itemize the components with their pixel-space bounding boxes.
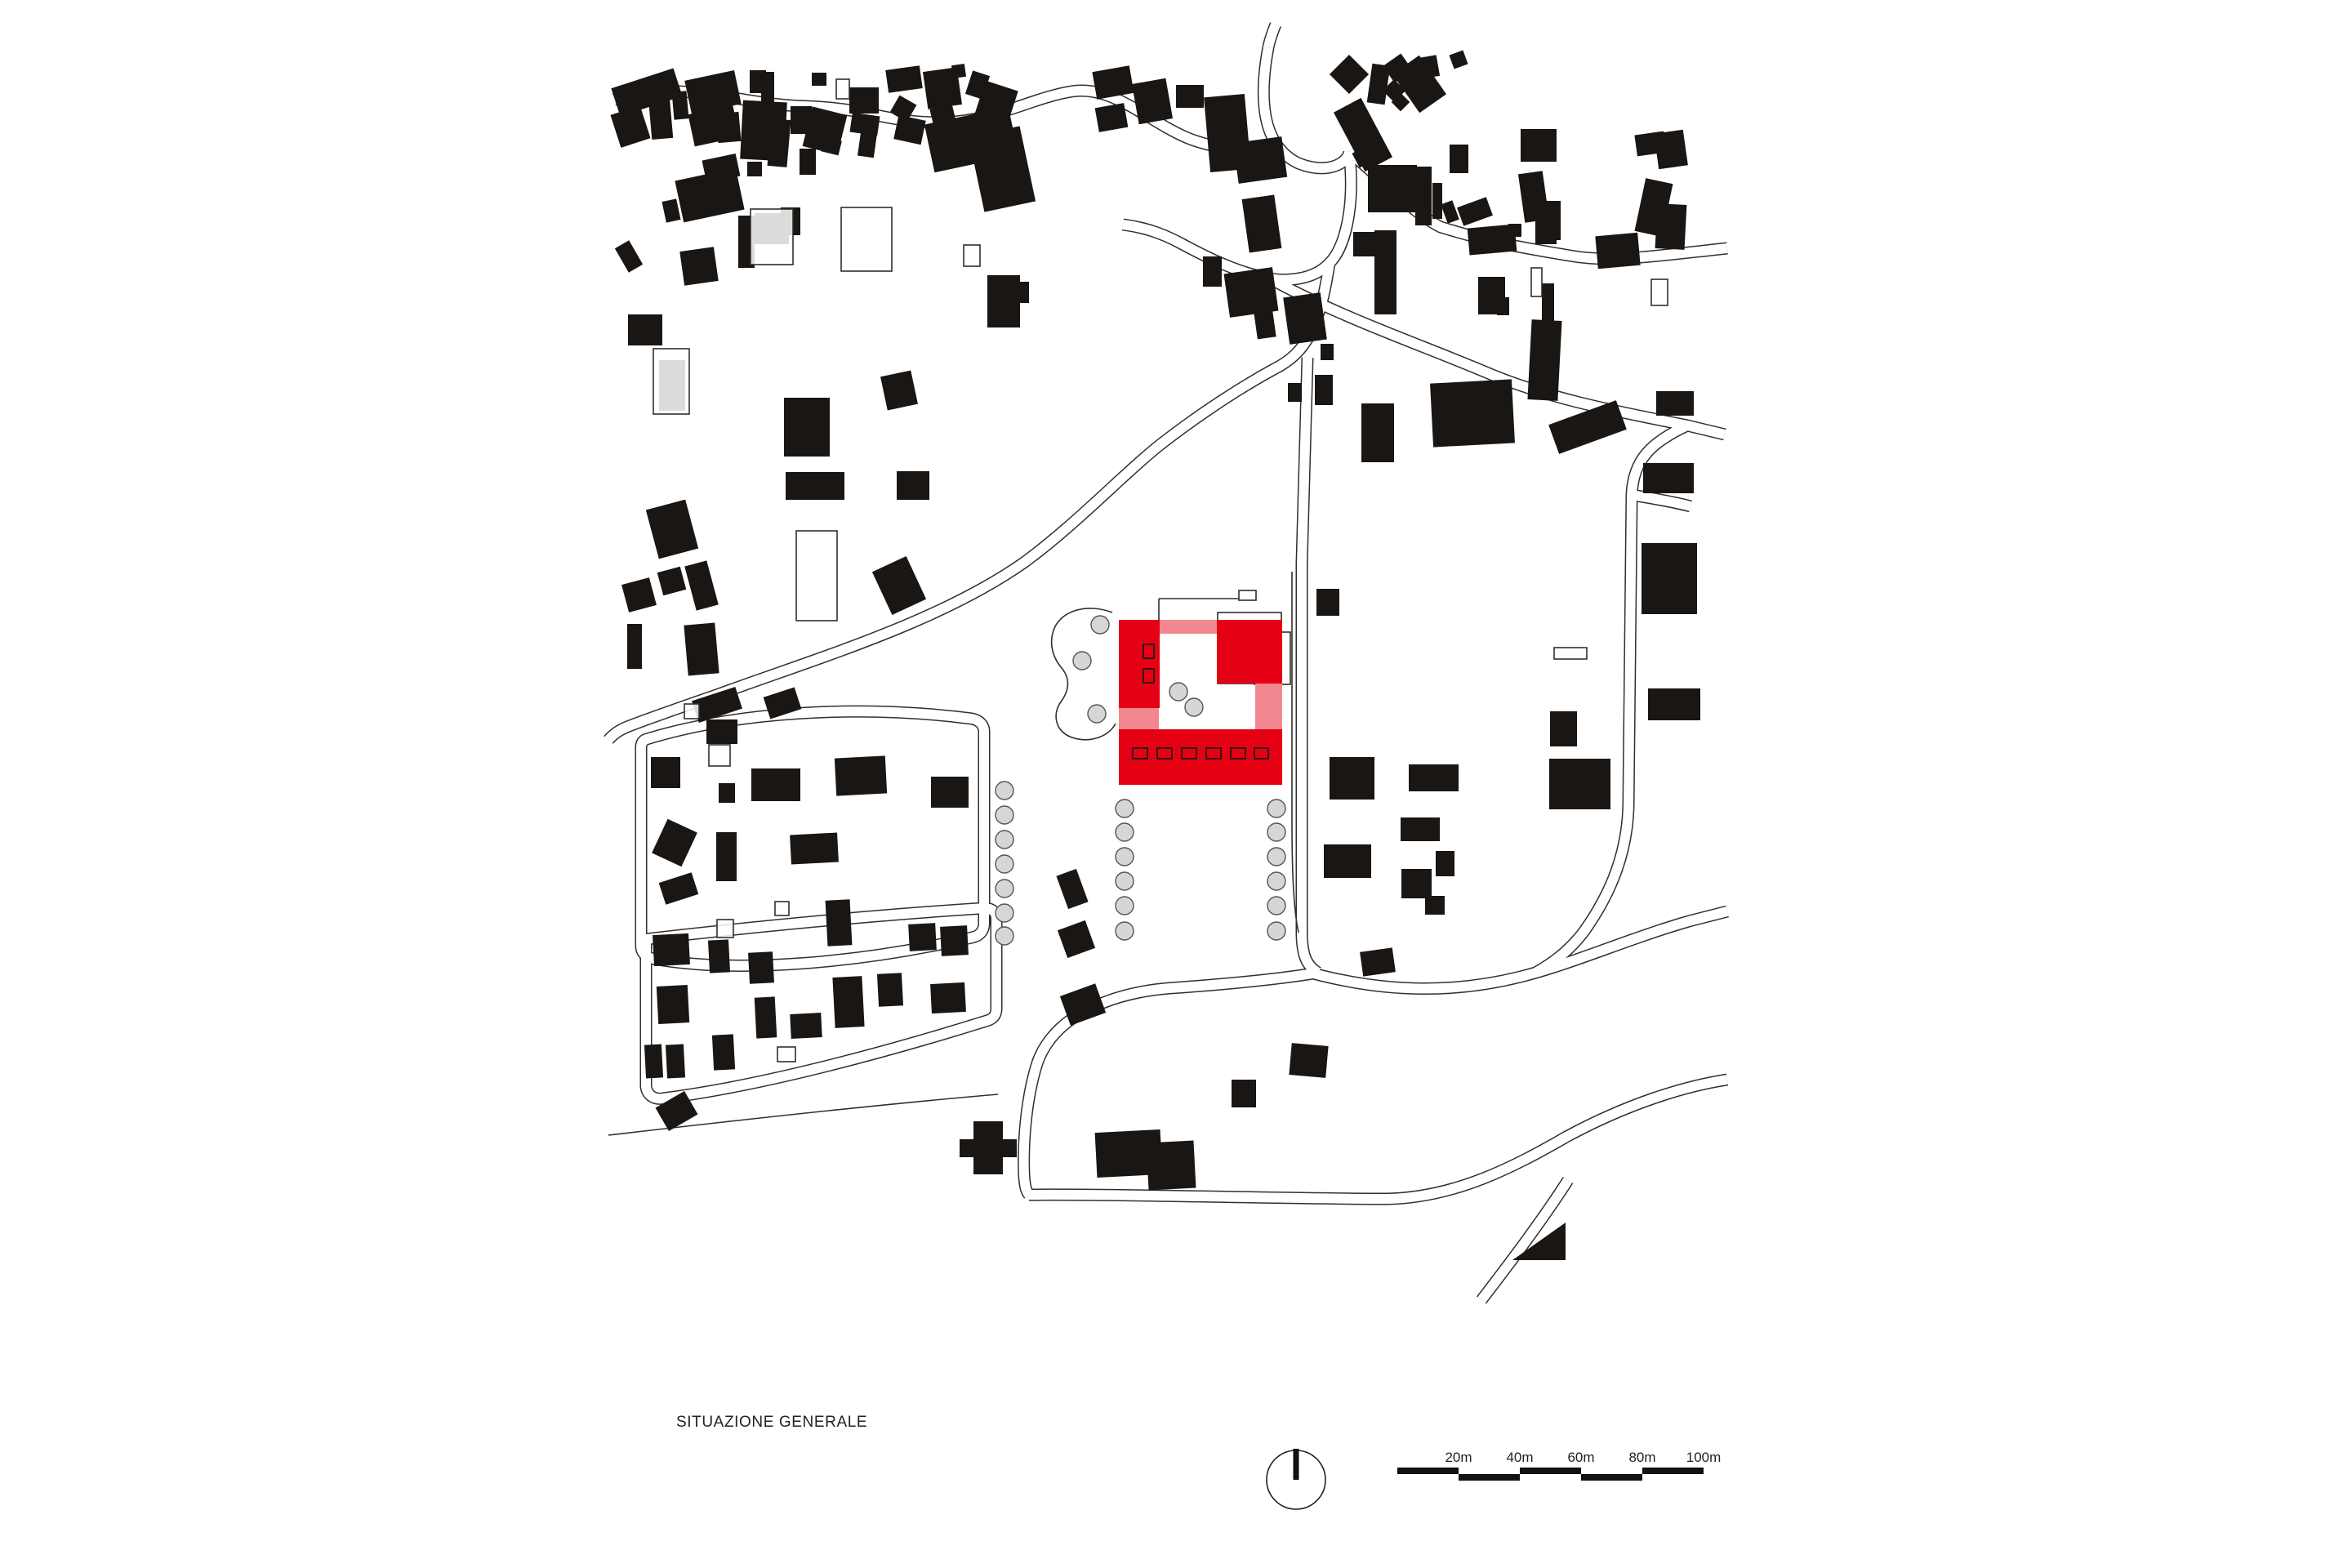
building-footprint <box>719 783 735 803</box>
site-plan-sheet: SITUAZIONE GENERALE 20m 40m 60m 80m 100m <box>0 0 2352 1568</box>
building-footprint <box>755 996 777 1038</box>
building-footprint <box>716 832 737 881</box>
building-outline <box>1651 279 1668 305</box>
building-footprint <box>1441 200 1459 224</box>
building-footprint <box>1176 85 1204 108</box>
building-footprint <box>657 567 687 596</box>
building-footprint <box>1409 764 1459 791</box>
building-footprint <box>1368 165 1417 212</box>
building-footprint <box>611 69 682 117</box>
building-footprint <box>897 471 929 500</box>
tree-circle <box>1088 705 1106 723</box>
scale-label-100m: 100m <box>1686 1450 1722 1465</box>
tree-circle <box>1116 848 1134 866</box>
scale-bar-labels: 20m 40m 60m 80m 100m <box>1445 1450 1721 1465</box>
tree-circle <box>996 927 1013 945</box>
building-footprint <box>931 777 969 808</box>
project-building-tint <box>1255 684 1282 730</box>
building-outline <box>717 920 733 938</box>
building-footprint <box>1535 220 1557 244</box>
road-surface <box>1632 495 1690 506</box>
building-footprint <box>1655 203 1687 250</box>
building-footprint <box>1436 851 1454 876</box>
building-footprint <box>951 64 966 78</box>
building-footprint <box>1242 195 1282 253</box>
building-footprint <box>1401 817 1440 841</box>
building-footprint <box>1457 197 1493 226</box>
tree-circle <box>996 880 1013 898</box>
building-footprint <box>1360 947 1396 976</box>
building-footprint <box>684 560 719 610</box>
building-footprint <box>790 1013 822 1039</box>
building-footprint <box>768 118 791 167</box>
tree-circle <box>1267 848 1285 866</box>
building-footprint <box>1401 869 1432 898</box>
building-footprint <box>1095 103 1129 132</box>
building-outline <box>653 349 689 414</box>
project-building <box>1217 620 1282 684</box>
tree-circle <box>1267 800 1285 817</box>
building-footprint <box>1361 403 1394 462</box>
scale-label-60m: 60m <box>1567 1450 1594 1465</box>
tree-circle <box>1267 897 1285 915</box>
scale-label-20m: 20m <box>1445 1450 1472 1465</box>
building-footprint <box>1641 543 1697 614</box>
building-footprint <box>644 1044 663 1078</box>
tree-circle <box>1116 922 1134 940</box>
tree-circle <box>1116 823 1134 841</box>
tree-circle <box>1116 897 1134 915</box>
tree-circle <box>1185 698 1203 716</box>
scale-label-80m: 80m <box>1628 1450 1655 1465</box>
building-footprint <box>930 982 966 1013</box>
tree-circle <box>1267 922 1285 940</box>
building-footprint <box>751 768 800 801</box>
tree-circle <box>1169 683 1187 701</box>
building-footprint <box>661 198 680 222</box>
building-footprint <box>790 833 839 865</box>
scale-bar-segment <box>1459 1474 1520 1481</box>
project-building <box>1119 729 1282 785</box>
building-footprint <box>784 398 830 457</box>
building-outline <box>796 531 837 621</box>
building-footprint <box>1092 65 1134 99</box>
building-outline <box>709 745 730 766</box>
building-footprint <box>800 149 816 175</box>
building-footprint <box>1056 869 1088 909</box>
building-footprint <box>877 973 903 1007</box>
tree-circle <box>1267 872 1285 890</box>
building-footprint <box>832 976 864 1028</box>
building-footprint <box>651 757 680 788</box>
building-footprint <box>1550 711 1577 746</box>
scale-bar-segment <box>1520 1468 1581 1474</box>
building-footprint <box>1288 383 1302 402</box>
tree-circle <box>1091 616 1109 634</box>
building-footprint <box>684 622 719 675</box>
north-arrow-needle <box>1294 1449 1299 1480</box>
drawing-title: SITUAZIONE GENERALE <box>676 1414 867 1431</box>
building-footprint <box>987 275 1020 327</box>
tree-circle <box>996 855 1013 873</box>
building-footprint <box>748 951 774 984</box>
building-footprint <box>1450 145 1468 173</box>
building-footprint <box>1147 1141 1196 1191</box>
building-footprint <box>969 126 1036 212</box>
tree-circle <box>996 806 1013 824</box>
building-footprint <box>1654 130 1688 170</box>
building-footprint <box>1415 167 1432 225</box>
building-footprint <box>1374 230 1396 314</box>
building-footprint <box>1432 183 1442 219</box>
building-footprint <box>826 899 853 946</box>
building-footprint <box>880 371 918 411</box>
building-footprint <box>646 500 698 559</box>
building-footprint <box>1549 759 1610 809</box>
project-building-tint <box>1119 708 1159 730</box>
scale-bar <box>1397 1468 1704 1481</box>
scale-bar-segment <box>1581 1474 1642 1481</box>
building-footprint <box>1289 1043 1328 1078</box>
building-footprint <box>657 985 689 1024</box>
building-footprint <box>1643 463 1694 493</box>
building-outline <box>684 704 699 719</box>
building-footprint <box>960 1139 1017 1157</box>
building-outline <box>751 209 793 265</box>
building-footprint <box>1595 233 1640 269</box>
scale-bar-segment <box>1397 1468 1459 1474</box>
building-footprint <box>885 65 922 93</box>
building-footprint <box>1449 50 1468 69</box>
building-footprint <box>715 112 741 143</box>
tree-circle <box>1116 872 1134 890</box>
building-footprint <box>1232 1080 1256 1107</box>
tree-circle <box>996 904 1013 922</box>
building-footprint <box>857 131 877 158</box>
building-outline <box>1554 648 1587 659</box>
building-footprint <box>1132 78 1173 125</box>
scale-label-40m: 40m <box>1506 1450 1533 1465</box>
building-footprint <box>712 1034 735 1070</box>
building-footprint <box>1527 319 1561 401</box>
project-building <box>1119 620 1160 708</box>
building-outline <box>1239 590 1256 600</box>
building-footprint <box>1418 55 1440 79</box>
tree-circle <box>996 831 1013 849</box>
tree-circle <box>1073 652 1091 670</box>
building-footprint <box>849 87 879 114</box>
building-footprint <box>648 96 673 140</box>
building-footprint <box>1283 292 1327 345</box>
site-plan-drawing: SITUAZIONE GENERALE 20m 40m 60m 80m 100m <box>0 0 2352 1568</box>
building-footprint <box>627 624 642 669</box>
building-footprint <box>1656 391 1694 416</box>
building-outline <box>777 1047 795 1062</box>
building-footprint <box>1233 136 1287 184</box>
building-footprint <box>628 314 662 345</box>
building-footprint <box>1508 224 1521 237</box>
building-footprint <box>666 1044 685 1078</box>
building-footprint <box>1425 896 1445 915</box>
project-building-tint <box>1160 620 1217 634</box>
building-footprint <box>786 472 844 500</box>
building-footprint <box>652 819 697 867</box>
building-footprint <box>1018 282 1029 303</box>
building-outline <box>836 79 849 99</box>
building-footprint <box>1521 129 1557 162</box>
building-footprint <box>747 162 762 176</box>
building-footprint <box>1316 589 1339 616</box>
tree-circle <box>1267 823 1285 841</box>
building-footprint <box>872 556 926 615</box>
building-footprint <box>1058 920 1095 958</box>
scale-bar-segment <box>1642 1468 1704 1474</box>
building-outline <box>841 207 892 271</box>
building-footprint <box>1648 688 1700 720</box>
building-footprint <box>615 240 643 272</box>
building-footprint <box>610 105 650 148</box>
building-footprint <box>679 247 718 285</box>
building-footprint <box>672 91 689 119</box>
tree-circle <box>1116 800 1134 817</box>
building-footprint <box>1330 55 1369 94</box>
building-footprint <box>1430 379 1515 447</box>
building-footprint <box>1324 844 1371 878</box>
building-footprint <box>653 933 690 966</box>
building-footprint <box>621 577 657 612</box>
building-outline <box>964 245 980 266</box>
building-footprint <box>835 755 887 795</box>
building-footprint <box>1315 375 1333 405</box>
building-footprint <box>1330 757 1374 800</box>
building-footprint <box>908 923 937 951</box>
building-footprint <box>1321 344 1334 360</box>
building-footprint <box>708 939 730 973</box>
building-footprint <box>940 925 969 956</box>
north-arrow <box>1267 1449 1325 1509</box>
building-footprint <box>812 73 826 86</box>
tree-circle <box>996 782 1013 800</box>
building-footprint <box>1203 256 1222 287</box>
building-footprint <box>659 872 699 905</box>
building-outline <box>1531 268 1542 296</box>
building-footprint <box>706 719 737 744</box>
building-outline <box>775 902 789 915</box>
building-footprint <box>1497 297 1509 315</box>
